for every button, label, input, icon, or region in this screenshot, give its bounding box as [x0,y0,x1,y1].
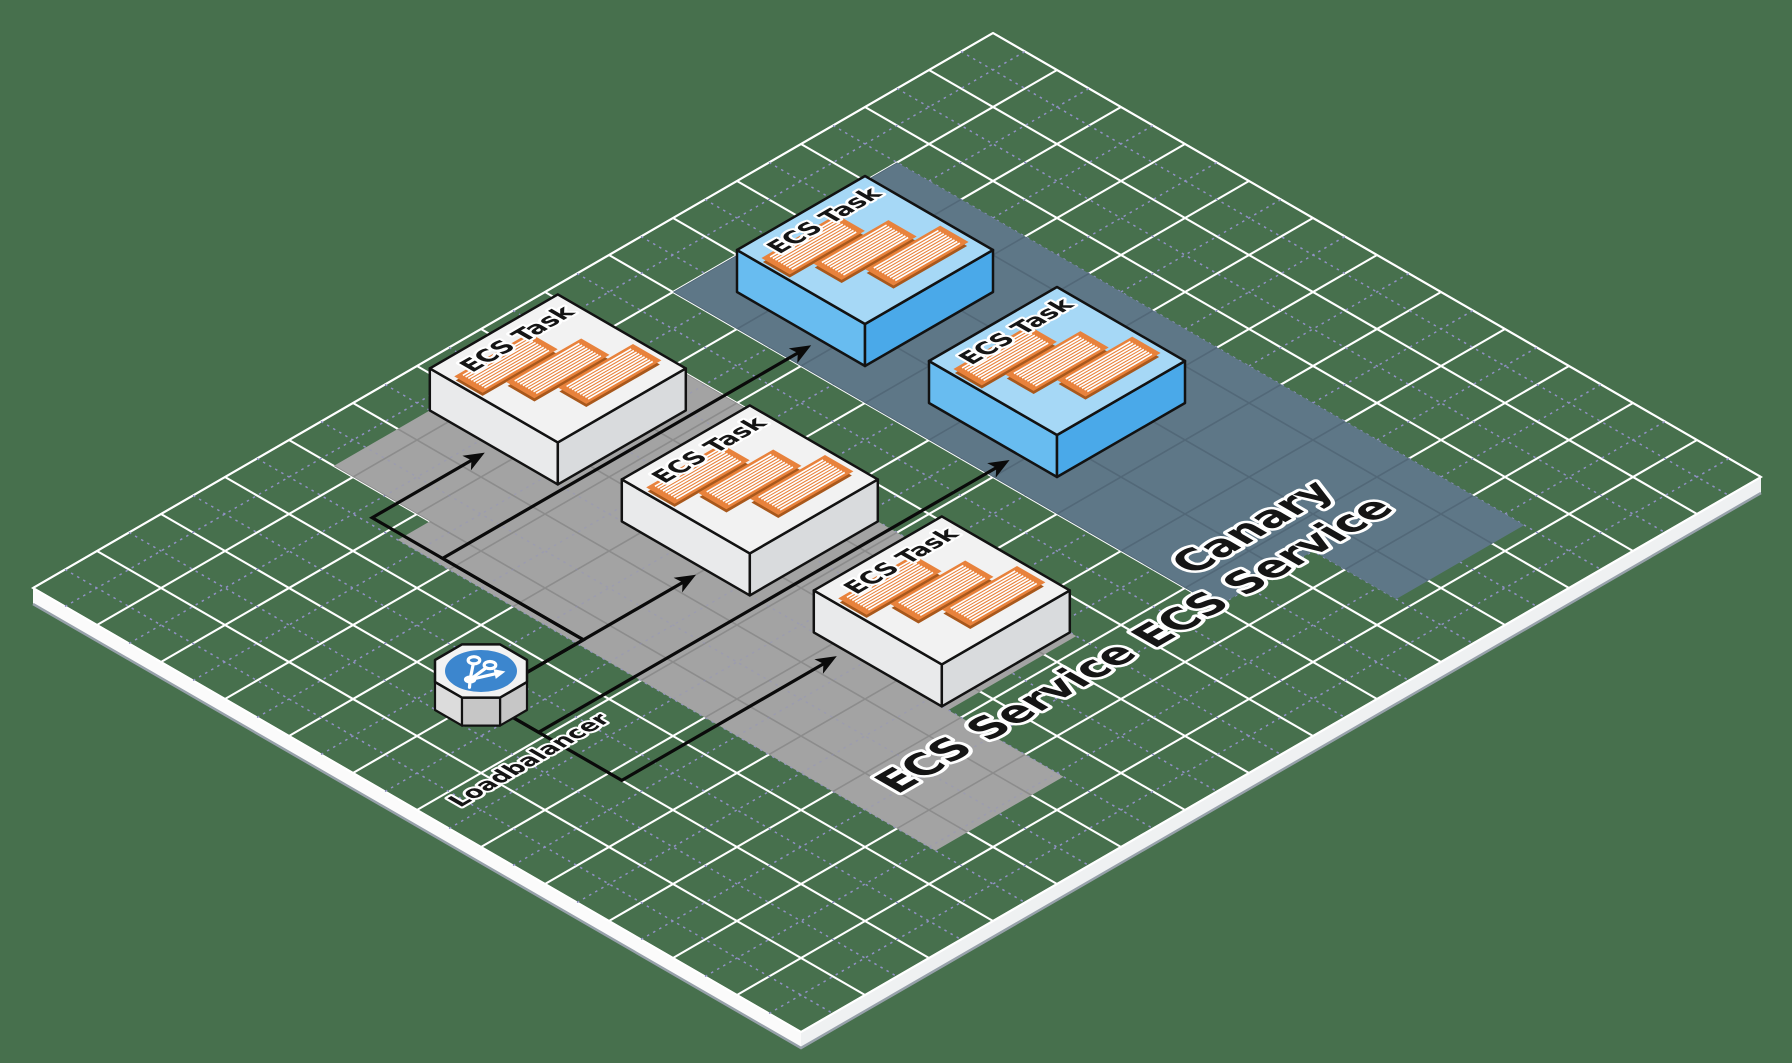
loadbalancer-side [462,698,500,726]
loadbalancer-node [435,644,527,725]
isometric-scene: ECS TaskECS TaskECS TaskECS TaskECS Task… [0,0,1792,1063]
isometric-diagram: ECS TaskECS TaskECS TaskECS TaskECS Task… [0,0,1792,1063]
